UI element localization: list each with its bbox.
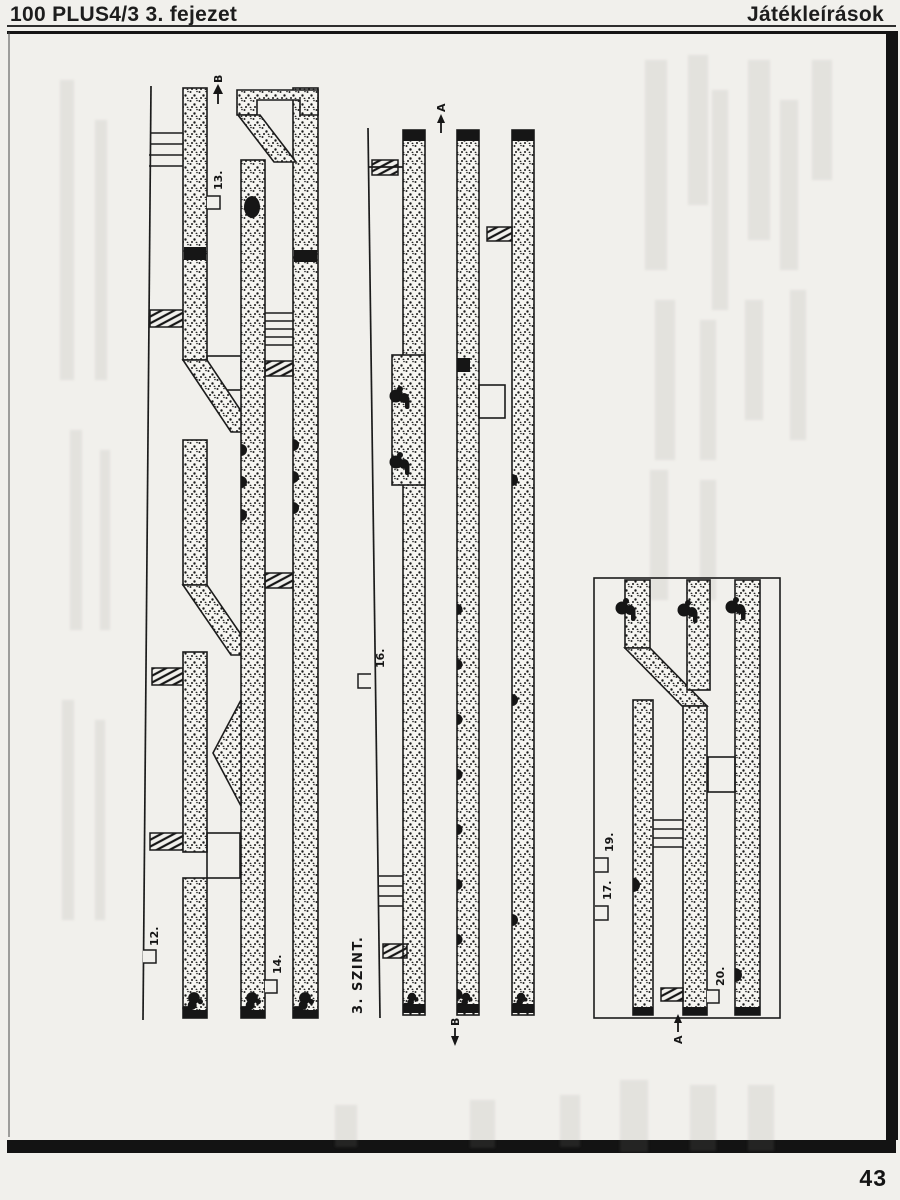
- ladder-icon: [379, 876, 403, 906]
- sloped-platform: [238, 115, 296, 162]
- hatched-passage-icon: [152, 668, 183, 685]
- map-section-3: 20. 19. 17. A: [594, 578, 780, 1044]
- platform-strip: [403, 130, 425, 1015]
- door-marker: [358, 674, 371, 688]
- scanned-page: 100 PLUS4/3 3. fejezet Játékleírások: [0, 0, 900, 1200]
- door-marker: [707, 990, 719, 1003]
- door-marker: [265, 980, 277, 993]
- section2-boundary-line: [368, 128, 380, 1018]
- platform-strip: [241, 160, 265, 1018]
- room-label: 19.: [603, 833, 616, 853]
- hatched-passage-icon: [265, 573, 293, 588]
- room-label: 12.: [148, 927, 161, 947]
- map-section-1: 13. 12. 14. B: [143, 75, 318, 1020]
- wedge-platform: [213, 700, 241, 806]
- hatched-passage-icon: [383, 944, 407, 958]
- door-marker: [207, 196, 220, 209]
- exit-arrow-b-bottom: B: [449, 1018, 462, 1046]
- ladder-icon: [653, 820, 683, 847]
- room-label: 13.: [212, 171, 225, 191]
- exit-arrow-b-top: B: [212, 75, 225, 104]
- hatched-passage-icon: [487, 227, 512, 241]
- platform-strip: [683, 706, 707, 1015]
- platform-strip: [183, 440, 207, 585]
- platform-strip: [633, 700, 653, 1015]
- room-label: 20.: [714, 967, 727, 987]
- room-label: 14.: [271, 955, 284, 975]
- svg-text:A: A: [435, 103, 448, 112]
- room-label: 17.: [601, 881, 614, 901]
- hatched-passage-icon: [661, 988, 683, 1001]
- hatched-passage-icon: [150, 833, 183, 850]
- room-outline: [207, 833, 240, 878]
- room-label: 16.: [374, 649, 387, 669]
- level-map-figure: 13. 12. 14. B 3. SZINT.: [0, 0, 900, 1200]
- platform-strip: [293, 88, 318, 1018]
- section1-boundary-line: [143, 86, 151, 1020]
- platform-hook: [237, 90, 318, 115]
- exit-arrow-a-top: A: [435, 103, 448, 133]
- platform-strip: [735, 580, 760, 1015]
- room-outline: [708, 757, 735, 792]
- door-marker: [143, 950, 156, 963]
- hatched-passage-icon: [372, 160, 398, 175]
- svg-text:B: B: [449, 1018, 462, 1026]
- platform-strip: [183, 88, 207, 360]
- platform-strip: [687, 580, 710, 690]
- door-marker: [595, 906, 608, 920]
- page-bleed-through: [60, 55, 832, 1152]
- hatched-passage-icon: [150, 310, 183, 327]
- hatched-passage-icon: [265, 361, 293, 376]
- door-marker: [595, 858, 608, 872]
- level-label: 3. SZINT.: [351, 936, 366, 1014]
- platform-strip: [512, 130, 534, 1015]
- svg-text:B: B: [212, 75, 225, 83]
- platform-strip: [183, 652, 207, 852]
- ladder-icon: [149, 133, 184, 166]
- svg-text:A: A: [672, 1035, 685, 1044]
- ladder-icon: [265, 313, 293, 345]
- page-number: 43: [859, 1165, 887, 1192]
- room-outline: [479, 385, 505, 418]
- map-section-2: 3. SZINT.: [351, 103, 534, 1046]
